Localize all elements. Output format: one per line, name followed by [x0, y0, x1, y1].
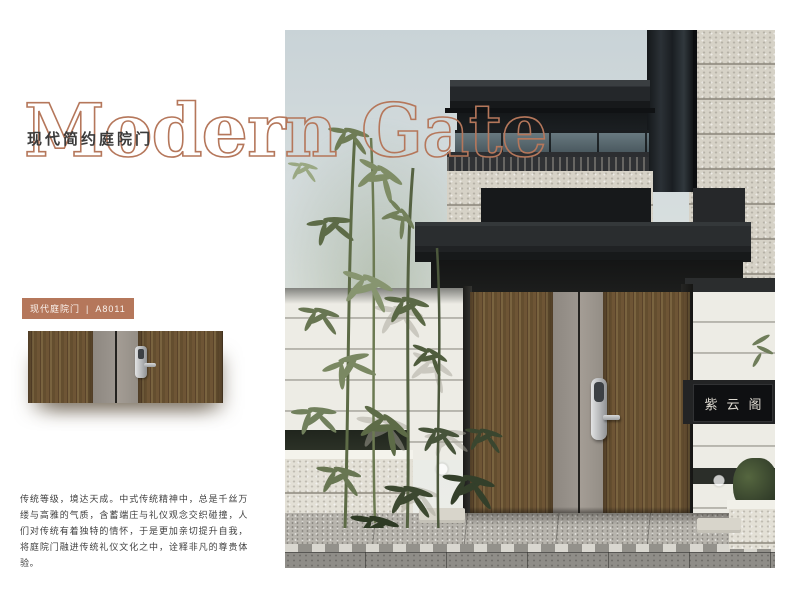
- product-description: 传统等级，境达天成。中式传统精神中，总是千丝万缕与高雅的气质，含蓄端庄与礼仪观念…: [20, 491, 248, 571]
- bamboo-leaves-top-right: [747, 330, 775, 370]
- catalog-page: 紫云阁: [0, 0, 800, 600]
- thumb-wood-panel-right: [138, 331, 223, 403]
- gate-wood-panel-right: [603, 292, 690, 513]
- name-plaque: 紫云阁: [693, 384, 773, 422]
- stone-drum-right-base: [697, 518, 741, 530]
- model-badge-divider: |: [86, 304, 89, 314]
- smart-lock-handle: [603, 415, 620, 420]
- model-badge-number: A8011: [95, 304, 125, 314]
- plaque-text: 紫云阁: [695, 394, 770, 413]
- gate-elevation-thumbnail: [28, 331, 223, 403]
- thumb-wood-panel-left: [28, 331, 93, 403]
- stone-drum-right: [703, 466, 735, 522]
- paving-border-row: [285, 544, 775, 552]
- model-badge-category: 现代庭院门: [30, 302, 80, 315]
- model-badge: 现代庭院门 | A8011: [22, 298, 134, 319]
- walkway-slabs: [285, 552, 775, 568]
- gate-metal-panel-left: [553, 292, 578, 513]
- thumb-lock-handle: [144, 363, 156, 367]
- smart-lock-keypad: [594, 382, 604, 402]
- thumb-lock-keypad: [138, 349, 144, 359]
- page-subtitle: 现代简约庭院门: [27, 128, 153, 149]
- thumb-metal-panel-left: [93, 331, 115, 403]
